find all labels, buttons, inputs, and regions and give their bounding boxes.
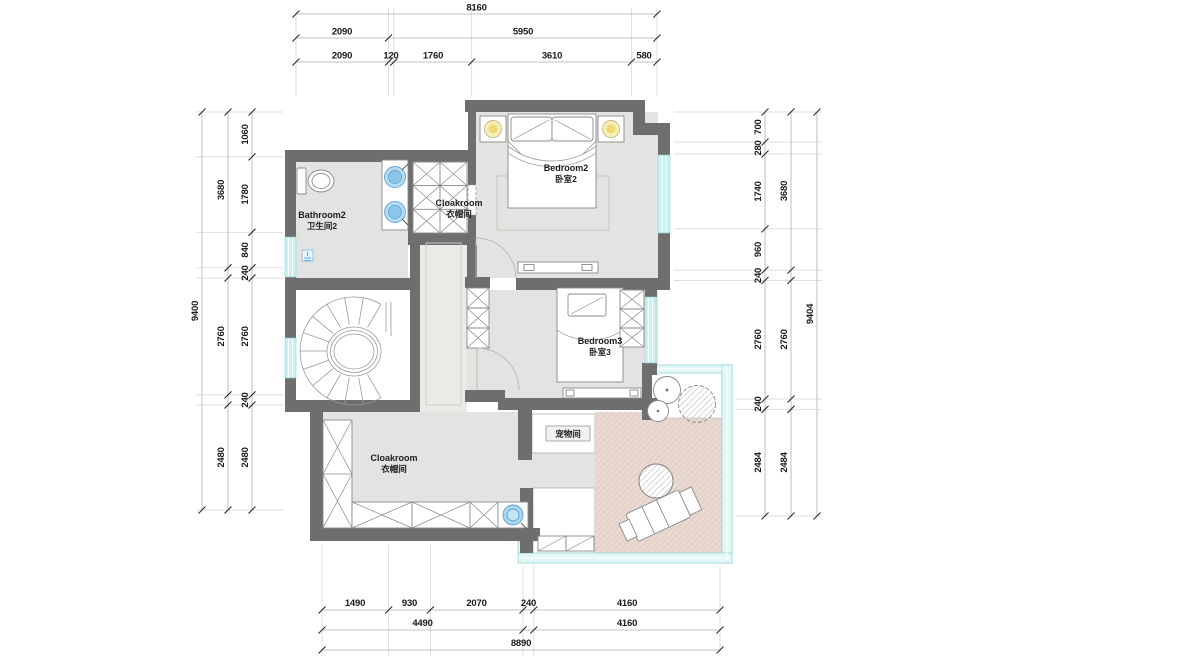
window-bedroom2-right bbox=[658, 155, 670, 233]
label-cloakroom-bottom-en: Cloakroom bbox=[370, 453, 417, 463]
dim-bottom-r1-3: 240 bbox=[521, 598, 536, 609]
tv-cabinet-handle-1 bbox=[524, 265, 534, 271]
label-bedroom2-zh: 卧室2 bbox=[555, 174, 577, 184]
dim-bottom-r1-0: 1490 bbox=[345, 598, 365, 609]
basin-1-inner bbox=[389, 171, 402, 184]
dim-top-total: 8160 bbox=[466, 3, 486, 14]
label-cloakroom-top-en: Cloakroom bbox=[435, 198, 482, 208]
dim-left-m-1: 2760 bbox=[216, 326, 227, 346]
toilet-bowl-inner bbox=[312, 174, 330, 189]
dim-bottom-r1-4: 4160 bbox=[617, 598, 637, 609]
dim-right-m-1: 2760 bbox=[779, 329, 790, 349]
window-bedroom3-right bbox=[645, 297, 656, 363]
bottom-row-wardrobe bbox=[352, 502, 528, 528]
dim-right-i-4: 240 bbox=[753, 268, 764, 283]
plant-2-dot bbox=[657, 410, 660, 413]
floor-plan-canvas: Bathroom2 卫生间2 Cloakroom 衣帽间 Bedroom2 卧室… bbox=[0, 0, 1200, 660]
dim-bottom-total: 8890 bbox=[511, 638, 531, 649]
dim-right-i-0: 700 bbox=[753, 119, 764, 134]
dim-left-i-1: 1780 bbox=[240, 184, 251, 204]
dim-right-total: 9404 bbox=[805, 303, 816, 324]
floor-stair-room bbox=[296, 288, 404, 400]
dim-right-i-2: 1740 bbox=[753, 181, 764, 201]
dim-top-r2-0: 2090 bbox=[332, 27, 352, 38]
terrace-table-hatch bbox=[639, 464, 673, 498]
label-bedroom3-zh: 卧室3 bbox=[589, 347, 611, 357]
dim-right-i-1: 280 bbox=[753, 140, 764, 155]
dim-left-m-2: 2480 bbox=[216, 447, 227, 467]
dim-top-r3-0: 2090 bbox=[332, 51, 352, 62]
lamp-right-bulb bbox=[607, 125, 616, 134]
label-bathroom2-zh: 卫生间2 bbox=[307, 221, 338, 231]
dim-bottom-r1-2: 2070 bbox=[466, 598, 486, 609]
dim-left-m-0: 3680 bbox=[216, 180, 227, 200]
sink-bottom-inner bbox=[507, 509, 519, 521]
dim-right-i-3: 960 bbox=[753, 242, 764, 257]
floor-plan-drawing: Bathroom2 卫生间2 Cloakroom 衣帽间 Bedroom2 卧室… bbox=[0, 0, 1200, 660]
dim-left-i-5: 240 bbox=[240, 392, 251, 407]
label-pet-room-zh: 宠物间 bbox=[555, 429, 581, 439]
dim-top-r3-4: 580 bbox=[636, 51, 651, 62]
dresser-bedroom3 bbox=[563, 388, 641, 398]
lamp-left-bulb bbox=[489, 125, 498, 134]
dresser-end-1 bbox=[566, 390, 574, 396]
label-cloakroom-bottom-zh: 衣帽间 bbox=[381, 464, 407, 474]
window-bathroom-left bbox=[285, 237, 296, 277]
floor-corridor bbox=[420, 233, 467, 412]
dim-left-i-0: 1060 bbox=[240, 124, 251, 144]
basin-2-inner bbox=[389, 206, 402, 219]
window-stair-left bbox=[285, 338, 296, 378]
label-bathroom2-en: Bathroom2 bbox=[298, 210, 346, 220]
dim-right-i-7: 2484 bbox=[753, 451, 764, 472]
toilet-tank bbox=[297, 168, 306, 194]
dim-right-m-0: 3680 bbox=[779, 181, 790, 201]
dim-bottom-r1-1: 930 bbox=[402, 598, 417, 609]
dim-left-total: 9400 bbox=[190, 301, 201, 321]
dim-left-i-4: 2760 bbox=[240, 326, 251, 346]
label-bedroom2-en: Bedroom2 bbox=[544, 163, 589, 173]
label-cloakroom-top-zh: 衣帽间 bbox=[446, 209, 472, 219]
dim-right-i-6: 240 bbox=[753, 396, 764, 411]
dim-bottom-r2-1: 4160 bbox=[617, 618, 637, 629]
tv-cabinet-handle-2 bbox=[582, 265, 592, 271]
dim-left-i-6: 2480 bbox=[240, 447, 251, 467]
dim-left-i-3: 240 bbox=[240, 265, 251, 280]
dim-top-r3-3: 3610 bbox=[542, 51, 562, 62]
dim-top-r3-2: 1760 bbox=[423, 51, 443, 62]
dim-top-r3-1: 120 bbox=[383, 51, 398, 62]
hall-wardrobe bbox=[467, 288, 489, 348]
plant-3-large bbox=[679, 386, 716, 423]
dim-bottom-r2-0: 4490 bbox=[412, 618, 432, 629]
bottom-room-bench bbox=[538, 536, 594, 551]
label-bedroom3-en: Bedroom3 bbox=[578, 336, 623, 346]
dim-left-i-2: 840 bbox=[240, 242, 251, 257]
dresser-end-2 bbox=[630, 390, 638, 396]
plant-1-dot bbox=[666, 389, 669, 392]
dim-right-i-5: 2760 bbox=[753, 329, 764, 349]
dim-top-r2-1: 5950 bbox=[513, 27, 533, 38]
dim-right-m-2: 2484 bbox=[779, 451, 790, 472]
